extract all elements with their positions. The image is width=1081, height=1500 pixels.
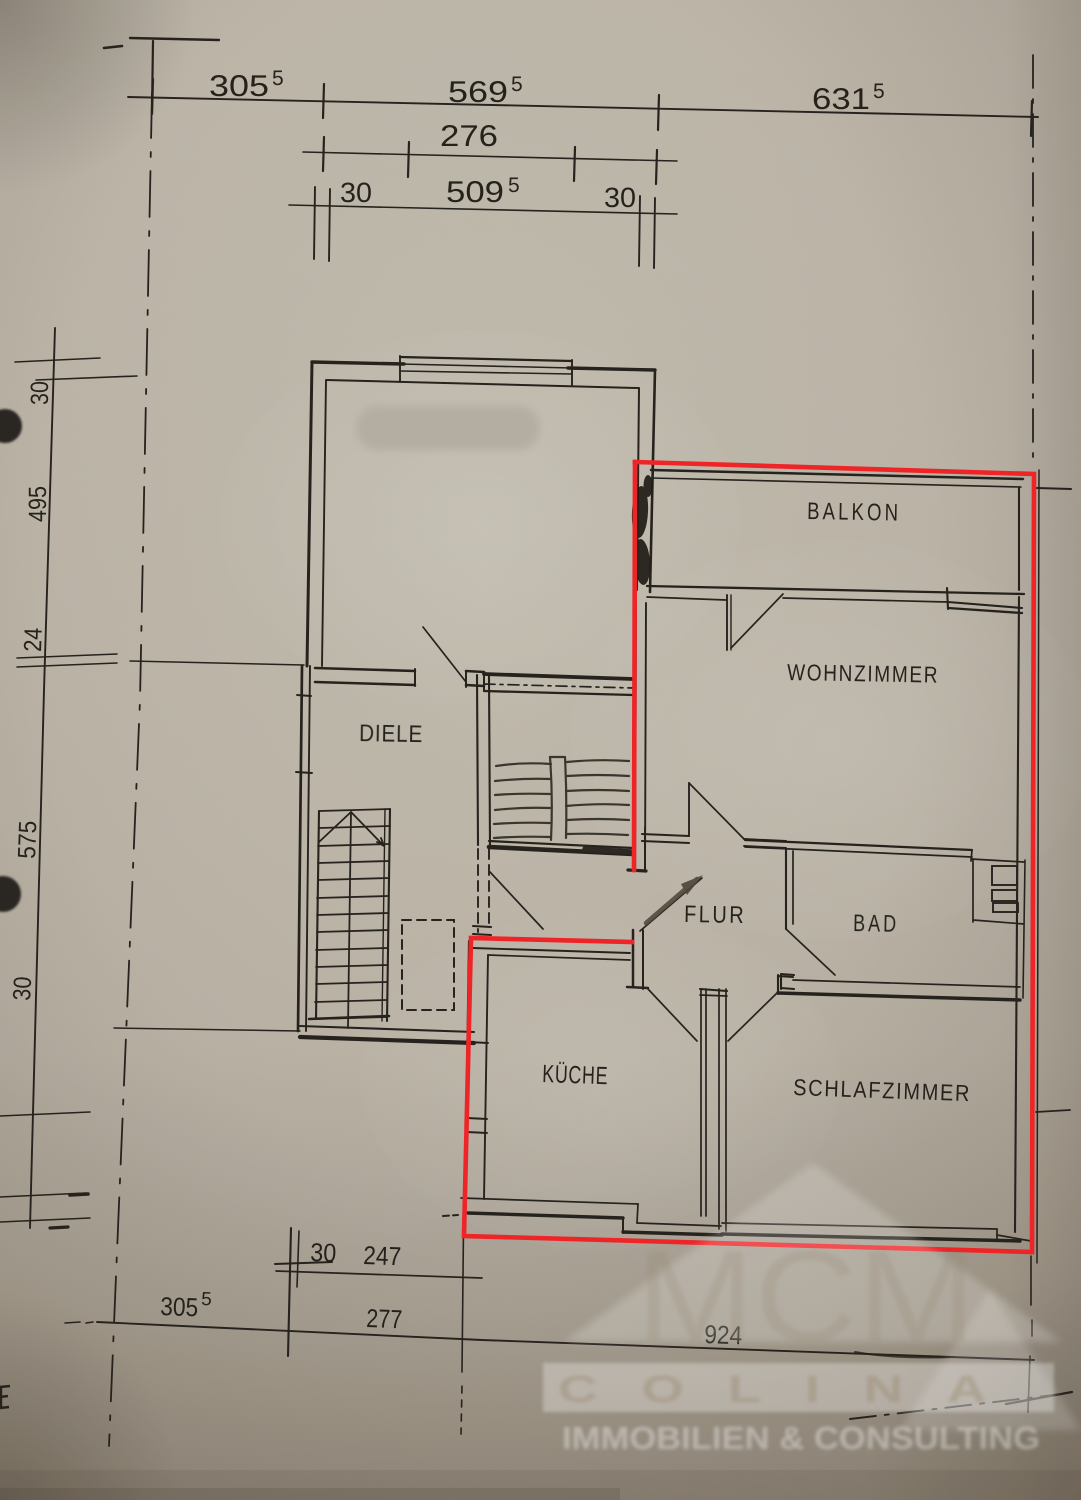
svg-text:WOHNZIMMER: WOHNZIMMER	[787, 659, 939, 688]
svg-text:247: 247	[363, 1240, 402, 1271]
svg-text:MCM: MCM	[636, 1223, 976, 1369]
svg-text:495: 495	[24, 486, 52, 522]
svg-text:30: 30	[604, 182, 636, 213]
svg-text:DIELE: DIELE	[359, 720, 423, 748]
svg-text:569: 569	[448, 76, 508, 109]
svg-text:631: 631	[812, 83, 870, 116]
svg-text:24: 24	[19, 627, 48, 652]
svg-text:509: 509	[446, 176, 504, 209]
svg-text:KÜCHE: KÜCHE	[542, 1060, 609, 1090]
svg-text:30: 30	[310, 1237, 337, 1268]
svg-text:305: 305	[160, 1291, 199, 1322]
svg-text:575: 575	[13, 820, 42, 859]
svg-text:5: 5	[508, 174, 520, 197]
svg-text:276: 276	[440, 120, 498, 153]
svg-text:30: 30	[26, 381, 54, 405]
svg-text:FLUR: FLUR	[684, 901, 746, 929]
svg-text:5: 5	[201, 1289, 212, 1310]
svg-text:5: 5	[873, 80, 885, 103]
svg-text:5: 5	[511, 73, 523, 96]
svg-text:IMMOBILIEN & CONSULTING: IMMOBILIEN & CONSULTING	[562, 1420, 1040, 1456]
svg-text:5: 5	[272, 67, 284, 90]
svg-text:BAD: BAD	[853, 910, 899, 938]
svg-text:COLINA: COLINA	[558, 1369, 1030, 1411]
svg-text:30: 30	[8, 976, 37, 1001]
svg-text:BALKON: BALKON	[807, 498, 901, 527]
svg-text:30: 30	[340, 177, 372, 208]
svg-text:277: 277	[366, 1303, 403, 1334]
svg-text:305: 305	[209, 70, 269, 103]
